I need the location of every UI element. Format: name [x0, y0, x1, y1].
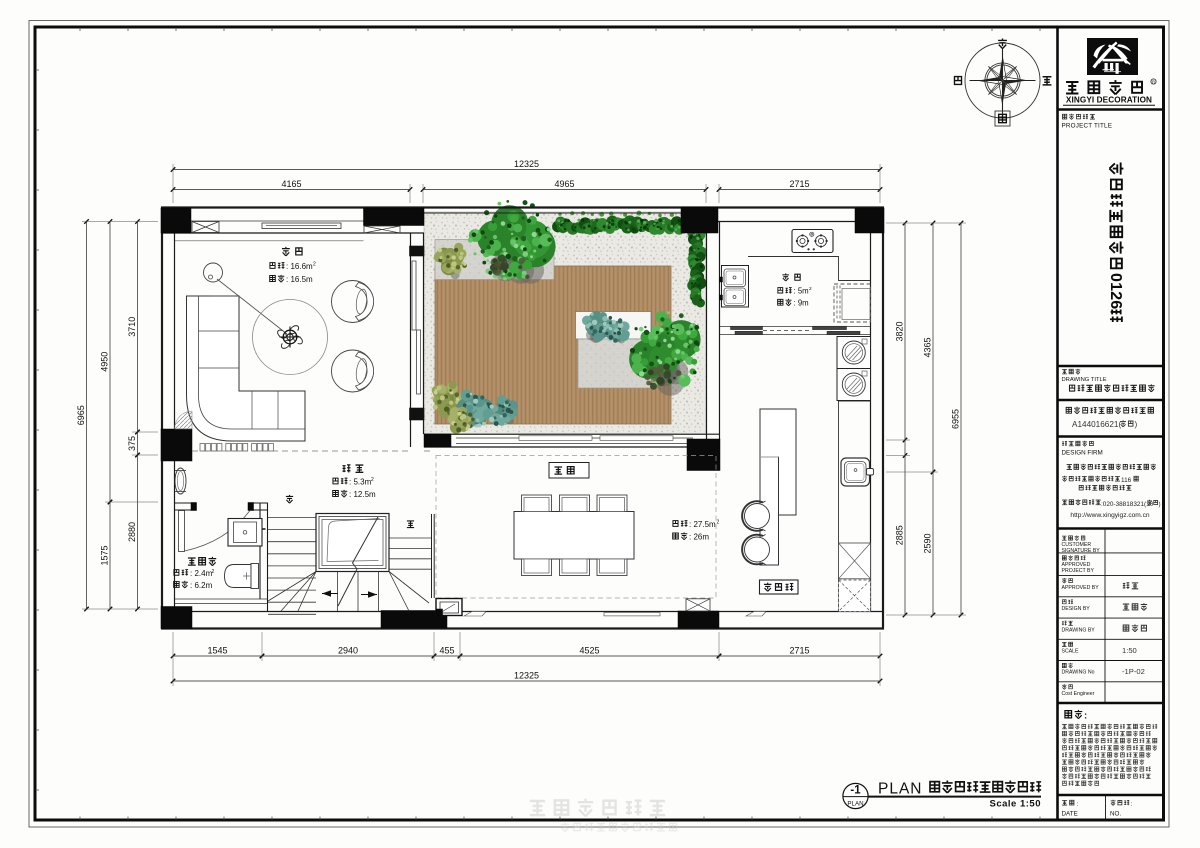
svg-text:3710: 3710 — [127, 317, 137, 337]
svg-text:DESIGN BY: DESIGN BY — [1062, 606, 1091, 612]
svg-text:): ) — [1135, 420, 1138, 429]
svg-text:2: 2 — [717, 520, 720, 526]
svg-text:PROJECT BY: PROJECT BY — [1062, 568, 1095, 574]
svg-text:455: 455 — [439, 646, 454, 656]
svg-text:4525: 4525 — [579, 646, 599, 656]
svg-text:2880: 2880 — [127, 522, 137, 542]
svg-text:375: 375 — [127, 436, 137, 451]
svg-text:XINGYI DECORATION: XINGYI DECORATION — [1066, 96, 1152, 105]
svg-text:: 16.6m: : 16.6m — [286, 262, 313, 271]
svg-text:R: R — [1152, 80, 1155, 85]
svg-text:DRAWING BY: DRAWING BY — [1062, 627, 1096, 633]
svg-text:DRAWING No: DRAWING No — [1062, 670, 1095, 676]
svg-text:2: 2 — [371, 477, 374, 483]
svg-text:: 6.2m: : 6.2m — [190, 581, 213, 590]
svg-text:0126: 0126 — [1107, 273, 1124, 309]
svg-text:1545: 1545 — [207, 646, 227, 656]
svg-text:4950: 4950 — [100, 352, 110, 372]
svg-text:: 5m: : 5m — [794, 287, 809, 296]
svg-text:2: 2 — [212, 569, 215, 575]
svg-text:NO.: NO. — [1110, 811, 1121, 818]
svg-text:6955: 6955 — [951, 409, 961, 429]
svg-text:: 5.3m: : 5.3m — [349, 477, 372, 486]
svg-text:4365: 4365 — [923, 337, 933, 357]
svg-text::: : — [1131, 801, 1133, 808]
svg-text:: 26m: : 26m — [689, 533, 709, 542]
svg-text:2715: 2715 — [789, 179, 809, 189]
svg-text:6965: 6965 — [76, 405, 86, 425]
svg-text:DESIGN FIRM: DESIGN FIRM — [1062, 450, 1103, 457]
svg-text:: 9m: : 9m — [794, 299, 809, 308]
svg-text:Scale 1:50: Scale 1:50 — [990, 799, 1041, 810]
svg-text:PLAN: PLAN — [878, 781, 923, 798]
svg-text:12325: 12325 — [514, 159, 539, 169]
svg-text:4165: 4165 — [281, 179, 301, 189]
svg-text:: 16.5m: : 16.5m — [286, 275, 313, 284]
svg-text:): ) — [1159, 501, 1161, 508]
svg-text:1:50: 1:50 — [1122, 646, 1137, 655]
svg-text:2940: 2940 — [338, 646, 358, 656]
svg-text:1575: 1575 — [100, 545, 110, 565]
svg-text:2885: 2885 — [895, 525, 905, 545]
svg-text:12325: 12325 — [514, 671, 539, 681]
svg-text:http://www.xingyigz.com.cn: http://www.xingyigz.com.cn — [1070, 512, 1149, 519]
svg-text:-1P-02: -1P-02 — [1122, 667, 1145, 676]
svg-text:: 2.4m: : 2.4m — [190, 569, 213, 578]
svg-text:2715: 2715 — [789, 646, 809, 656]
svg-text:116: 116 — [1121, 477, 1132, 484]
svg-text:: 12.5m: : 12.5m — [349, 490, 376, 499]
svg-text:3820: 3820 — [895, 321, 905, 341]
svg-text:DATE: DATE — [1062, 811, 1078, 818]
svg-text:A144016621(: A144016621( — [1072, 420, 1121, 429]
svg-text:SCALE: SCALE — [1062, 649, 1080, 655]
svg-text::: : — [1084, 711, 1087, 722]
svg-text:2: 2 — [809, 286, 812, 292]
svg-text:APPROVED BY: APPROVED BY — [1062, 585, 1100, 591]
svg-text::020-38818321(10: :020-38818321(10 — [1101, 501, 1154, 508]
svg-text:PROJECT TITLE: PROJECT TITLE — [1062, 123, 1113, 130]
svg-text:: 27.5m: : 27.5m — [689, 520, 716, 529]
svg-text:PLAN: PLAN — [847, 801, 863, 808]
svg-text:Cost Engineer: Cost Engineer — [1062, 691, 1095, 697]
svg-text:4965: 4965 — [554, 179, 574, 189]
svg-text:2: 2 — [313, 262, 316, 268]
svg-text:2590: 2590 — [923, 533, 933, 553]
svg-text:-1: -1 — [850, 785, 861, 797]
svg-text:DRAWING TITLE: DRAWING TITLE — [1062, 377, 1107, 383]
svg-text::: : — [1077, 801, 1079, 808]
